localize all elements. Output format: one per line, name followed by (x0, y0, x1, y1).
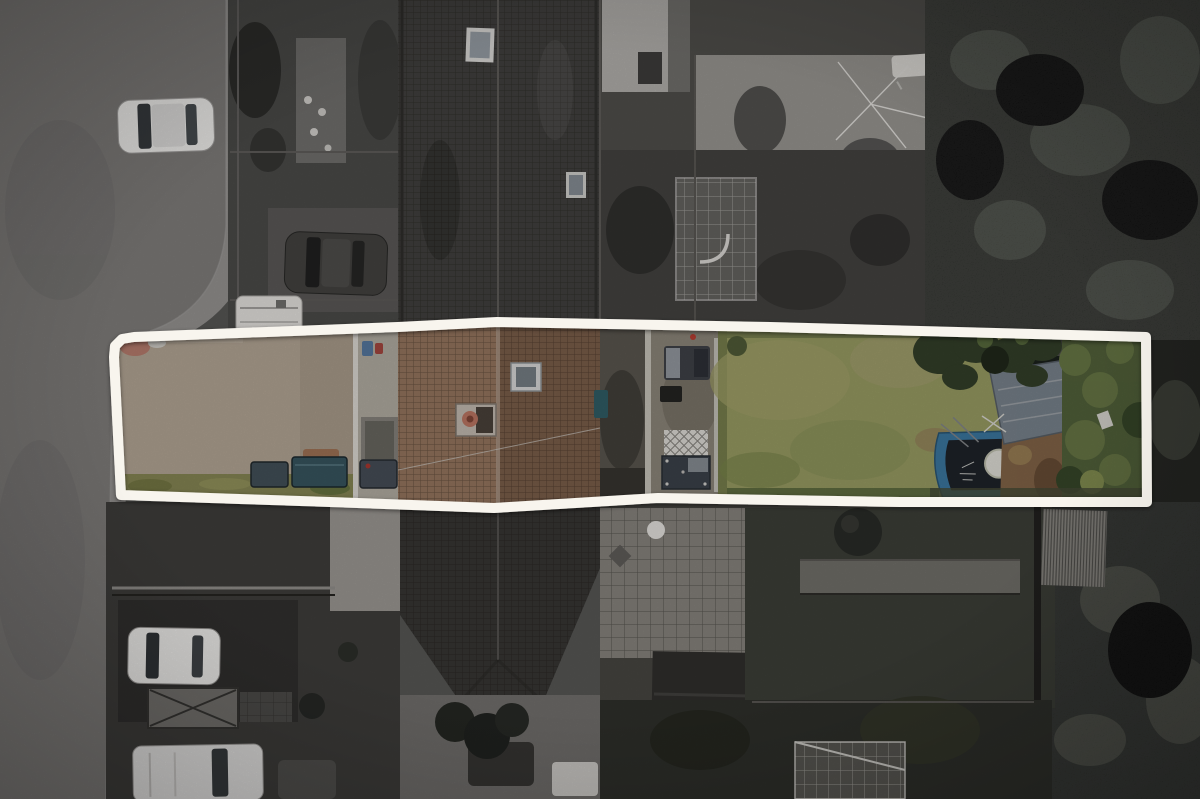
aerial-photo (0, 0, 1200, 799)
aerial-photo-canvas (0, 0, 1200, 799)
vignette (0, 0, 1200, 799)
